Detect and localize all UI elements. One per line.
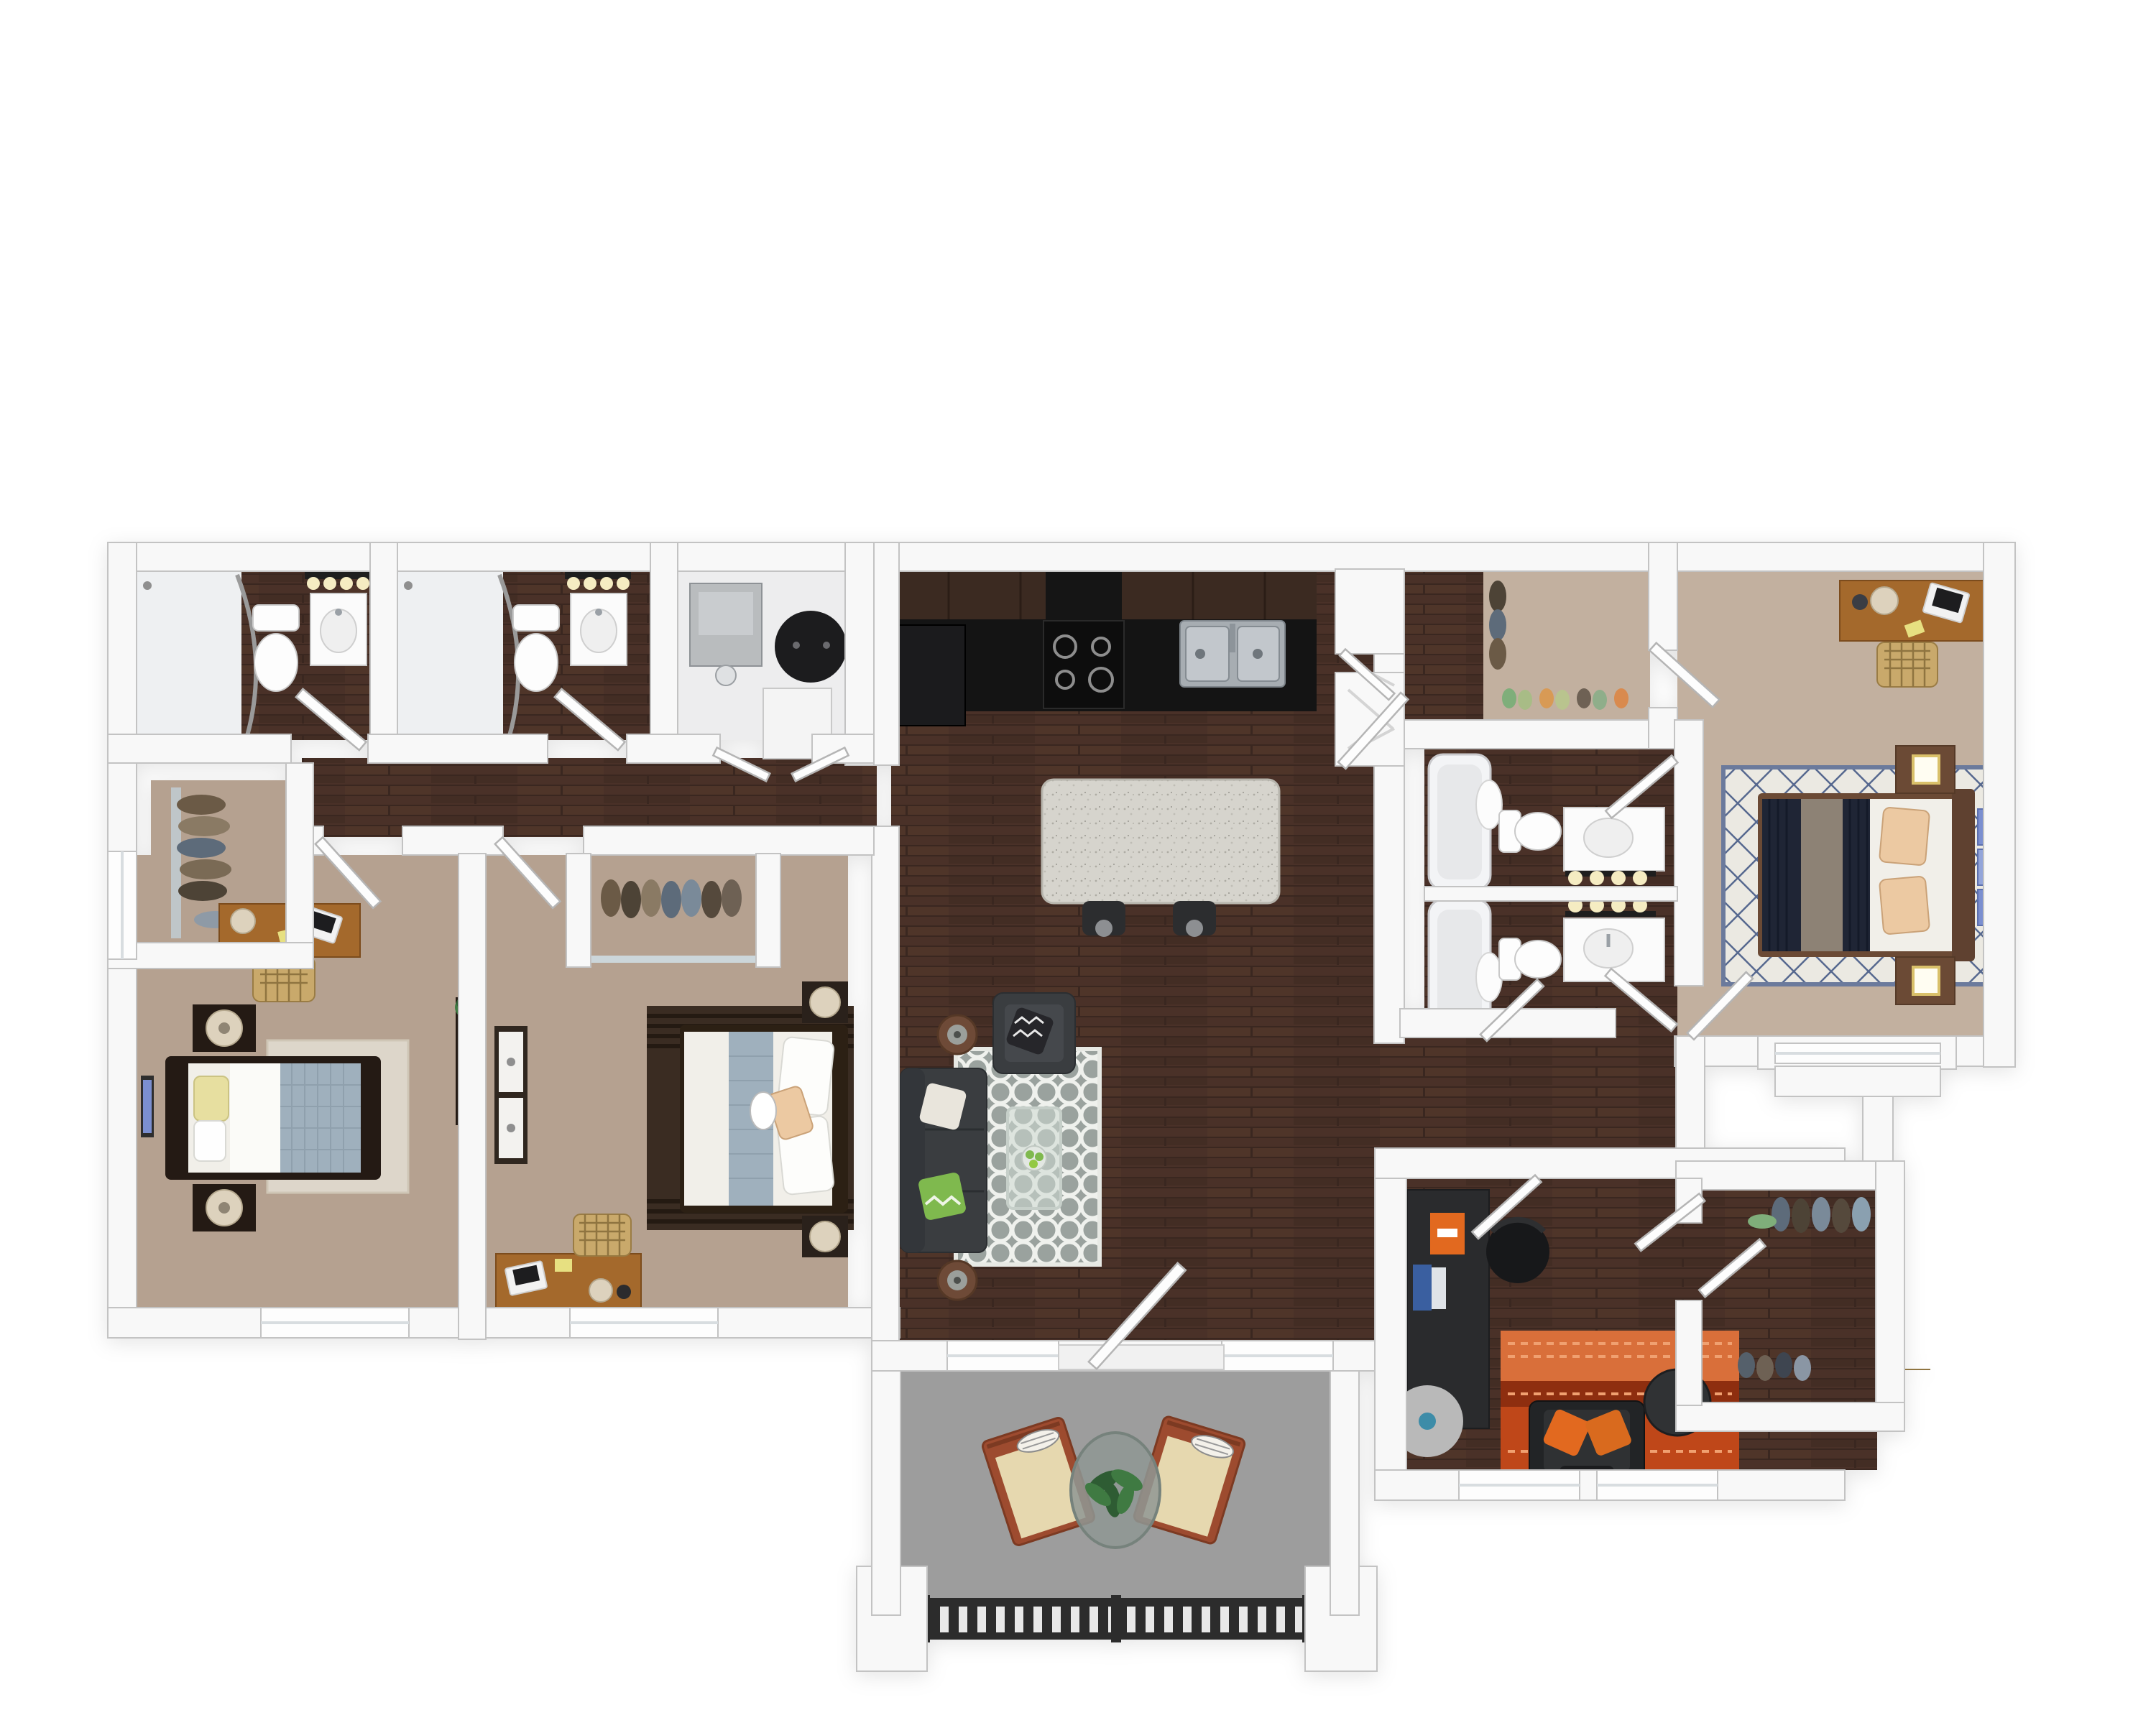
yellow-pillow bbox=[194, 1076, 229, 1121]
entry-threshold bbox=[1059, 1345, 1224, 1369]
monitor bbox=[1432, 1267, 1446, 1309]
window bbox=[261, 1308, 409, 1338]
wall-baths-master-divider bbox=[1674, 720, 1703, 986]
hallway-right-floor bbox=[1387, 1037, 1677, 1152]
round-side-table bbox=[938, 1015, 977, 1054]
toilet bbox=[1499, 810, 1561, 852]
bay-window bbox=[1775, 1043, 1940, 1063]
linen-closet bbox=[1335, 673, 1404, 766]
lamp bbox=[810, 987, 840, 1017]
bar-stool-base bbox=[1186, 920, 1203, 937]
toilet bbox=[513, 605, 559, 691]
water-heater bbox=[775, 611, 847, 683]
range-hood bbox=[1046, 569, 1122, 621]
bay-window-bump bbox=[1775, 1066, 1940, 1096]
hat bbox=[1748, 1214, 1777, 1229]
wall-bed1-bed2 bbox=[459, 854, 486, 1339]
round-side-table bbox=[938, 1261, 977, 1300]
bar-stool-base bbox=[1095, 920, 1112, 937]
dot-pillow bbox=[750, 1092, 776, 1129]
window bbox=[1597, 1470, 1718, 1500]
washer-lid bbox=[699, 592, 753, 635]
bed bbox=[1758, 789, 1975, 961]
vanity-sink bbox=[310, 593, 367, 665]
headboard bbox=[1952, 789, 1975, 961]
closet-rod bbox=[171, 787, 181, 938]
wall-masterclst-right-b bbox=[1649, 708, 1677, 749]
wall-closet1-bottom bbox=[108, 943, 313, 969]
nightstand bbox=[1896, 746, 1955, 793]
wall-bath1-bath2 bbox=[370, 542, 397, 738]
railing bbox=[921, 1595, 1311, 1642]
peach-pillow bbox=[1879, 876, 1930, 934]
wall-exterior-bottom-left bbox=[108, 1308, 900, 1338]
window bbox=[570, 1308, 718, 1338]
green-pillow bbox=[918, 1172, 967, 1221]
window bbox=[108, 851, 137, 959]
office-chair bbox=[1486, 1220, 1549, 1283]
wall-living-left-lower bbox=[872, 826, 899, 1342]
pantry bbox=[1335, 569, 1404, 654]
wall-masterbath-top bbox=[1400, 720, 1679, 749]
lamp bbox=[810, 1221, 840, 1252]
window bbox=[947, 1341, 1059, 1371]
wall-exterior-right bbox=[1984, 542, 2015, 1067]
shower-curtain bbox=[1476, 953, 1502, 1002]
wall-baths-bottom-b bbox=[368, 734, 548, 763]
desk-accessory bbox=[1852, 594, 1868, 610]
gold-lamp bbox=[1913, 967, 1939, 994]
wall-masterclst-right-a bbox=[1649, 542, 1677, 650]
tub-interior bbox=[1437, 910, 1482, 1023]
round-glass-table bbox=[1071, 1433, 1160, 1548]
tub-interior bbox=[1437, 764, 1482, 879]
white-pillow bbox=[194, 1121, 226, 1161]
wall-hall-bottom-b bbox=[402, 826, 503, 855]
bed bbox=[165, 1056, 381, 1180]
wall-closet3-bottom bbox=[1676, 1402, 1904, 1431]
wall-patio-left bbox=[872, 1371, 900, 1615]
wall-closet2-right bbox=[756, 854, 780, 967]
floor-plan-image bbox=[0, 0, 2156, 1710]
nightstand bbox=[193, 1004, 256, 1052]
books bbox=[1413, 1265, 1432, 1311]
speaker bbox=[617, 1285, 631, 1299]
mirror-sliding-door bbox=[589, 956, 757, 963]
shower bbox=[134, 569, 241, 739]
wall-bath2-laundry bbox=[650, 542, 678, 738]
wall-hall-bottom-c bbox=[584, 826, 874, 855]
wall-office-closet-divider-b bbox=[1676, 1300, 1702, 1405]
desk-lamp bbox=[1871, 587, 1898, 614]
washer-knob bbox=[716, 665, 736, 685]
hallway-left-floor bbox=[302, 758, 877, 837]
wall-closet3-top bbox=[1676, 1161, 1904, 1190]
wall-baths-bottom-c bbox=[627, 734, 720, 763]
window bbox=[1222, 1341, 1333, 1371]
nightstand bbox=[802, 1216, 848, 1257]
refrigerator bbox=[893, 625, 965, 726]
wall-closet1-right bbox=[286, 763, 313, 969]
wall-office-left bbox=[1375, 1148, 1406, 1500]
bed bbox=[680, 1025, 848, 1213]
armchair bbox=[993, 993, 1075, 1073]
shower bbox=[395, 569, 503, 739]
nightstand bbox=[193, 1184, 256, 1231]
desk-lamp bbox=[231, 909, 255, 933]
wall-living-left-upper bbox=[872, 542, 899, 765]
gold-lamp bbox=[1913, 756, 1939, 783]
glass-coffee-table bbox=[1008, 1108, 1061, 1208]
wall-closet3-right bbox=[1876, 1161, 1904, 1431]
toilet bbox=[1499, 938, 1561, 980]
notepad bbox=[555, 1259, 572, 1272]
window bbox=[1459, 1470, 1580, 1500]
desk-chair bbox=[1877, 642, 1938, 687]
wall-hall-right bbox=[1676, 1036, 1705, 1164]
wall-patio-right bbox=[1330, 1371, 1359, 1615]
wall-bathCD-divider bbox=[1424, 887, 1677, 901]
gray-throw bbox=[1801, 799, 1843, 951]
closet-clothes bbox=[1489, 581, 1506, 670]
toilet bbox=[253, 605, 299, 691]
floor-plan-svg bbox=[0, 0, 2156, 1710]
wall-laundry-right bbox=[845, 542, 874, 765]
shower-head bbox=[404, 581, 413, 590]
railing-post bbox=[1111, 1595, 1121, 1642]
shower-head bbox=[143, 581, 152, 590]
desk-chair bbox=[573, 1214, 631, 1256]
nightstand bbox=[802, 981, 848, 1023]
shower-curtain bbox=[1476, 780, 1502, 829]
nightstand bbox=[1896, 957, 1955, 1004]
peach-pillow bbox=[1879, 807, 1930, 865]
dresser bbox=[494, 1026, 528, 1164]
wall-art bbox=[141, 1076, 154, 1137]
desk-lamp bbox=[589, 1279, 612, 1302]
vanity-sink bbox=[571, 593, 627, 665]
range bbox=[1044, 621, 1124, 708]
wall-baths-bottom-a bbox=[108, 734, 291, 763]
wall-closet2-left bbox=[566, 854, 591, 967]
double-sink bbox=[1180, 621, 1285, 687]
sofa bbox=[900, 1068, 987, 1252]
